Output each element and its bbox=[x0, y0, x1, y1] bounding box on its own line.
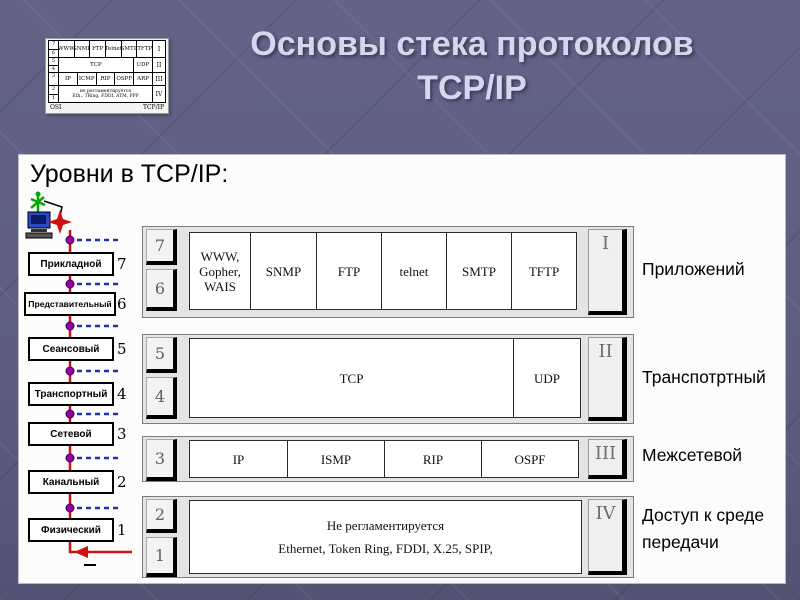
osi-layer-box: Сетевой bbox=[28, 422, 114, 446]
thumb-levels: 2 1 bbox=[49, 86, 59, 102]
protocol-cell: UDP bbox=[513, 338, 581, 418]
slide-title: Основы стека протоколов TCP/IP bbox=[170, 22, 774, 110]
protocol-cells-row-1: WWW, Gopher, WAIS SNMP FTP telnet SMTP T… bbox=[190, 232, 577, 310]
level-number-box: 5 bbox=[146, 337, 177, 373]
thumb-numeral: II bbox=[152, 58, 165, 72]
osi-layer-number: 7 bbox=[117, 252, 133, 276]
thumb-numeral: III bbox=[152, 73, 165, 85]
thumb-cell: OSPF bbox=[114, 73, 133, 85]
thumb-cell: ARP bbox=[133, 73, 152, 85]
tcpip-layer-label: Межсетевой bbox=[642, 442, 742, 469]
osi-layer-box: Физический bbox=[28, 518, 114, 542]
thumb-footer-osi: OSI bbox=[50, 104, 61, 111]
osi-layer-box: Прикладной bbox=[28, 252, 114, 276]
thumb-row-2: 5 4 TCP UDP II bbox=[48, 57, 166, 73]
slide-thumbnail: 7 6 WWW SNMP FTP Telnet SMTP TFTP I 5 4 … bbox=[45, 38, 169, 114]
title-line-2: TCP/IP bbox=[170, 66, 774, 110]
osi-layer-number: 1 bbox=[117, 518, 133, 542]
level-number-box: 2 bbox=[146, 499, 177, 533]
tcpip-layer-label: Приложений bbox=[642, 256, 745, 283]
roman-numeral-box: III bbox=[588, 439, 627, 479]
protocol-cell: OSPF bbox=[481, 440, 579, 478]
thumb-levels: 7 6 bbox=[49, 41, 59, 57]
thumb-levels: 3 bbox=[49, 73, 59, 85]
tcpip-layer-label: Транспотртный bbox=[642, 364, 766, 391]
osi-layer-number: 5 bbox=[117, 337, 133, 361]
thumb-cell: SNMP bbox=[74, 41, 90, 57]
level-number-box: 6 bbox=[146, 269, 177, 311]
thumb-cell: Telnet bbox=[105, 41, 121, 57]
unregulated-line-2: Ethernet, Token Ring, FDDI, X.25, SPIP, bbox=[278, 541, 492, 556]
thumb-unregulated-text: не регламентируется Eth., TRing, FDDI, A… bbox=[59, 86, 152, 102]
tcpip-layer-label: Доступ к среде передачи bbox=[642, 502, 792, 556]
roman-numeral-box: II bbox=[588, 337, 627, 421]
thumb-cell: WWW bbox=[59, 41, 74, 57]
protocol-cell: FTP bbox=[316, 232, 382, 310]
unregulated-cell: Не регламентируется Ethernet, Token Ring… bbox=[189, 500, 582, 574]
thumb-row-4: 2 1 не регламентируется Eth., TRing, FDD… bbox=[48, 85, 166, 103]
osi-layer-box: Сеансовый bbox=[28, 337, 114, 361]
protocol-cell: SNMP bbox=[250, 232, 317, 310]
unregulated-line-1: Не регламентируется bbox=[327, 518, 444, 533]
thumb-cell: SMTP bbox=[121, 41, 137, 57]
thumb-levels: 5 4 bbox=[49, 58, 59, 72]
protocol-cells-row-2: TCP UDP bbox=[190, 338, 581, 418]
protocol-cell: telnet bbox=[381, 232, 447, 310]
thumb-cell: RIP bbox=[96, 73, 115, 85]
osi-layer-number: 2 bbox=[117, 470, 133, 494]
thumb-numeral: IV bbox=[152, 86, 165, 102]
thumb-cell: IP bbox=[59, 73, 77, 85]
protocol-cell: ISMP bbox=[287, 440, 385, 478]
slide-background: Основы стека протоколов TCP/IP 7 6 WWW S… bbox=[0, 0, 800, 600]
protocol-cell: TCP bbox=[189, 338, 514, 418]
osi-layer-box: Канальный bbox=[28, 470, 114, 494]
level-number-box: 4 bbox=[146, 377, 177, 419]
roman-numeral-box: IV bbox=[588, 499, 627, 575]
thumb-cell: ICMP bbox=[77, 73, 96, 85]
level-number-box: 3 bbox=[146, 439, 177, 481]
protocol-cell: IP bbox=[189, 440, 288, 478]
title-line-1: Основы стека протоколов bbox=[170, 22, 774, 66]
osi-layer-box: Представительный bbox=[24, 292, 116, 316]
thumb-cell: FTP bbox=[89, 41, 105, 57]
protocol-cell: TFTP bbox=[511, 232, 577, 310]
roman-numeral-box: I bbox=[588, 229, 627, 315]
thumb-cell: TFTP bbox=[136, 41, 152, 57]
thumb-cell: TCP bbox=[59, 58, 133, 72]
thumb-numeral: I bbox=[152, 41, 165, 57]
protocol-cells-row-4: Не регламентируется Ethernet, Token Ring… bbox=[190, 500, 582, 574]
level-number-box: 1 bbox=[146, 537, 177, 577]
osi-layer-number: 6 bbox=[117, 292, 133, 316]
protocol-cell: SMTP bbox=[446, 232, 512, 310]
level-number-box: 7 bbox=[146, 229, 177, 265]
thumb-footer-tcpip: TCP/IP bbox=[143, 104, 164, 111]
thumb-cell: UDP bbox=[133, 58, 152, 72]
osi-layer-number: 4 bbox=[117, 382, 133, 406]
thumb-row-1: 7 6 WWW SNMP FTP Telnet SMTP TFTP I bbox=[48, 40, 166, 58]
thumb-footer: OSI TCP/IP bbox=[48, 103, 166, 112]
protocol-cells-row-3: IP ISMP RIP OSPF bbox=[190, 440, 579, 478]
protocol-cell: WWW, Gopher, WAIS bbox=[189, 232, 251, 310]
osi-layer-number: 3 bbox=[117, 422, 133, 446]
content-heading: Уровни в TCP/IP: bbox=[30, 160, 228, 189]
osi-layer-box: Транспортный bbox=[28, 382, 114, 406]
thumb-row-3: 3 IP ICMP RIP OSPF ARP III bbox=[48, 72, 166, 86]
protocol-cell: RIP bbox=[384, 440, 482, 478]
